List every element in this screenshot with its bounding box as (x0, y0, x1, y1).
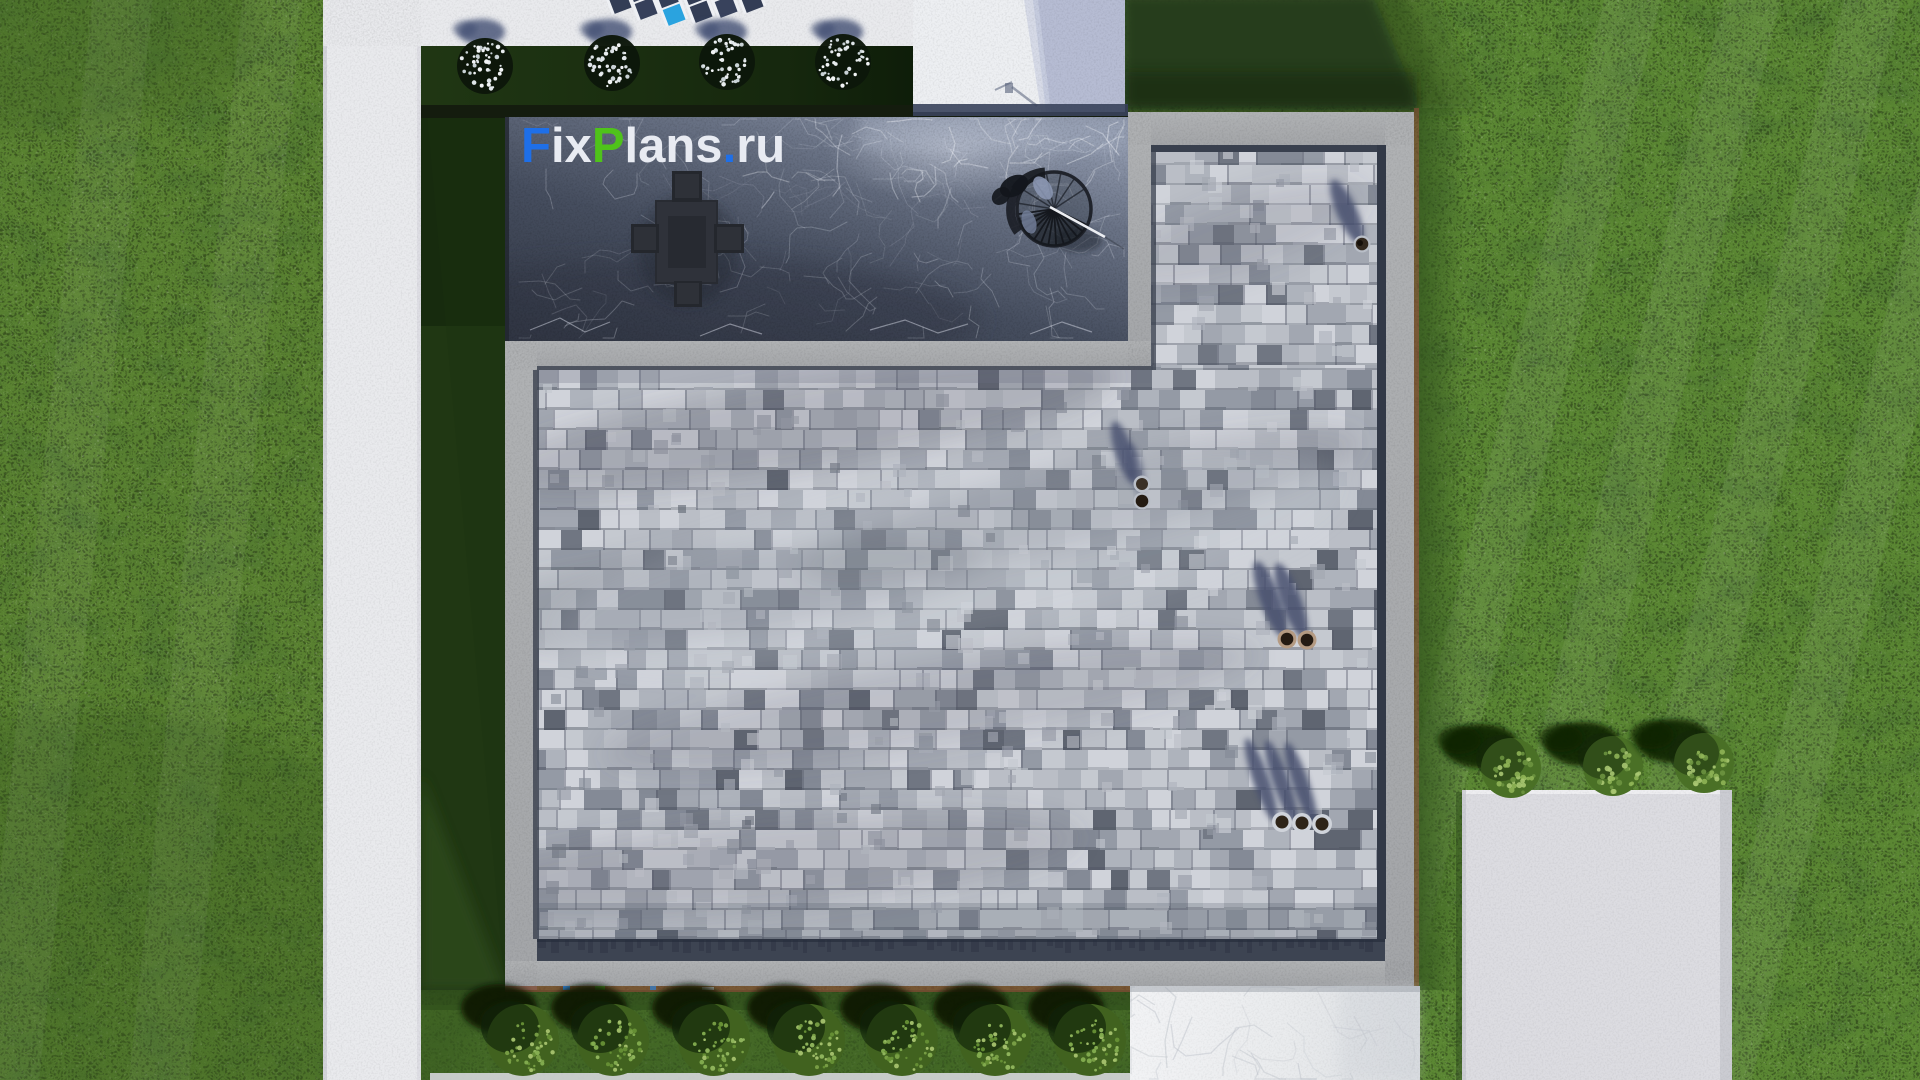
svg-text:FixPlans.ru: FixPlans.ru (521, 119, 785, 173)
